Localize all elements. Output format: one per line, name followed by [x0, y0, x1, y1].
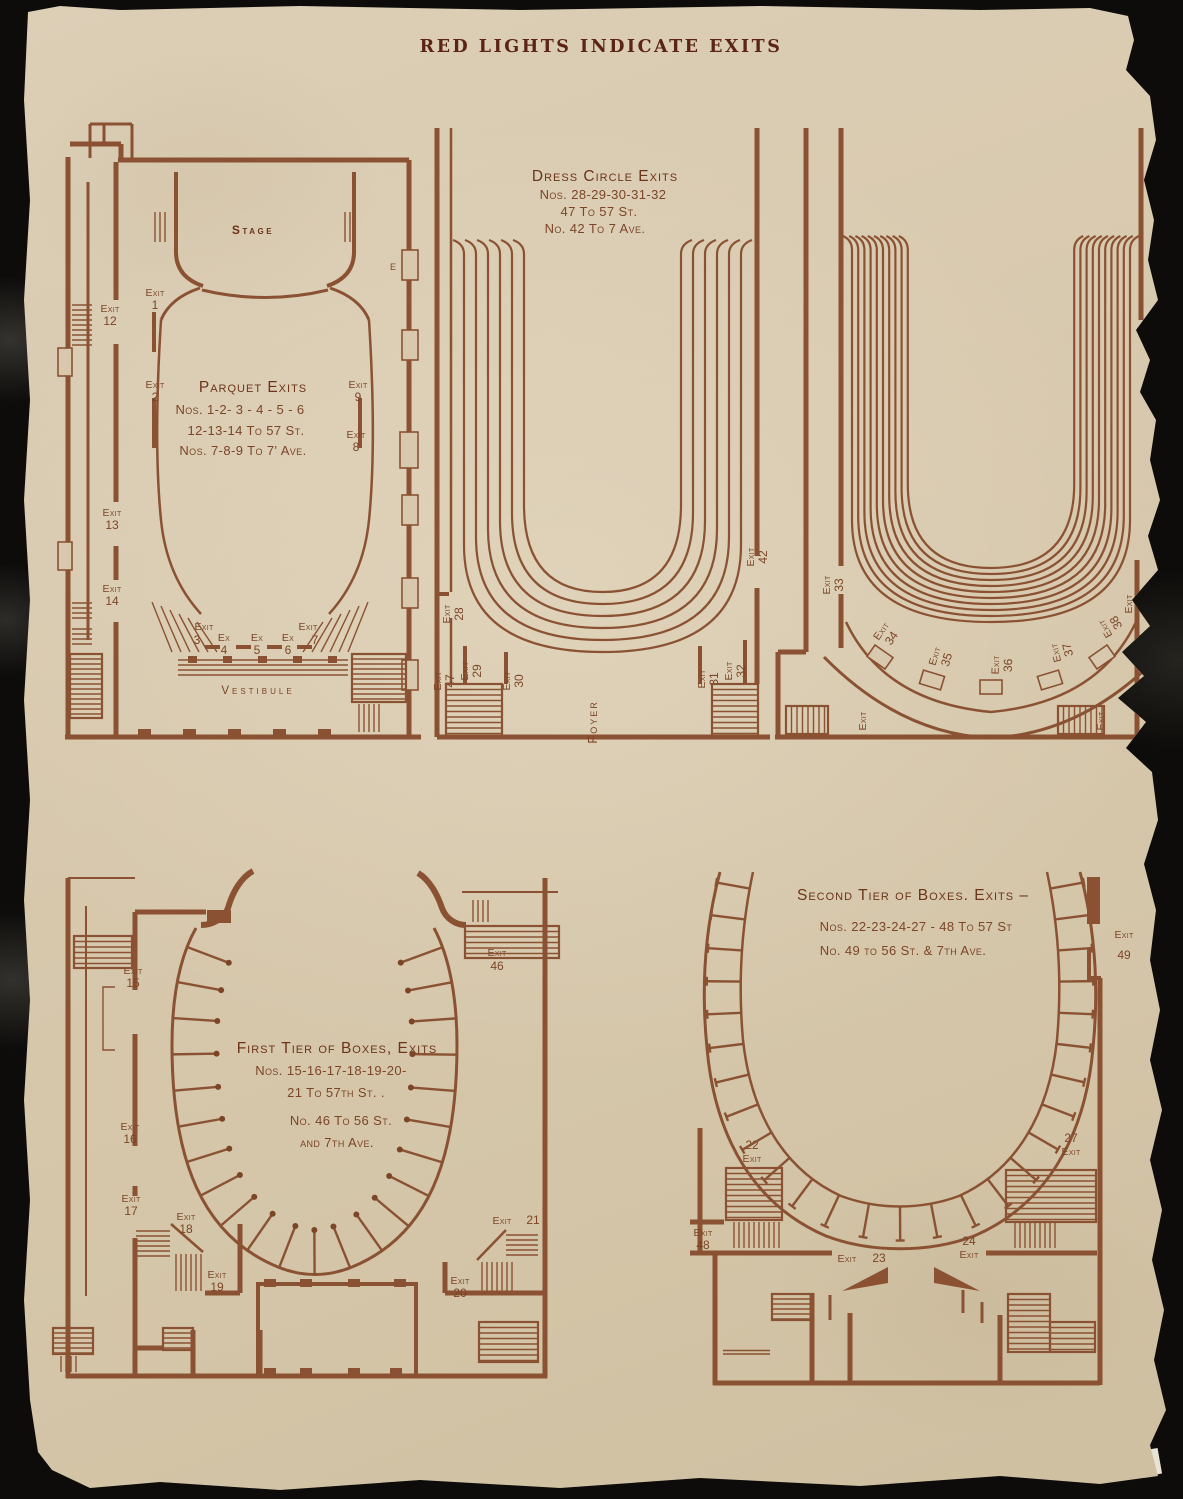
- staircase-hatch: [163, 1328, 193, 1350]
- door-bracket: [103, 987, 115, 1050]
- svg-text:32: 32: [734, 664, 748, 678]
- svg-text:9: 9: [355, 390, 362, 404]
- exit-label: Exit36: [990, 655, 1016, 675]
- staircase-hatch: [1008, 1294, 1050, 1352]
- svg-text:5: 5: [254, 643, 261, 657]
- door-swing-pennant: [934, 1267, 980, 1291]
- plan-note-line: No. 46 To 56 St.: [290, 1113, 392, 1128]
- svg-text:Foyer: Foyer: [585, 700, 600, 743]
- svg-text:16: 16: [123, 1132, 137, 1146]
- balcony-plan: Exit33 Exit34 Exit35 Exit36 Exit37 Exit3…: [775, 128, 1163, 738]
- svg-text:48: 48: [696, 1238, 710, 1252]
- staircase-hatch: [359, 704, 379, 732]
- parquet-plan: Stage E Vestibule Parquet Exits Nos. 1-2…: [58, 124, 421, 739]
- plan-note-line: 12-13-14 To 57 St.: [187, 423, 304, 438]
- svg-text:1: 1: [152, 298, 159, 312]
- dress-circle-plan: Dress Circle Exits Nos. 28-29-30-31-32 4…: [432, 128, 770, 744]
- exit-label: Exit29: [459, 661, 484, 681]
- exit-label: Ex4: [218, 632, 230, 657]
- exit-label: Exit33: [821, 575, 846, 595]
- svg-text:21: 21: [526, 1213, 540, 1227]
- lobby-columns: [264, 1279, 406, 1376]
- svg-text:8: 8: [353, 440, 360, 454]
- staircase-hatch: [506, 1235, 538, 1255]
- exit-plans-figure: RED LIGHTS INDICATE EXITS Stage E Vestib…: [0, 0, 1183, 1499]
- exit-label: Exit46: [487, 947, 507, 973]
- svg-text:6: 6: [285, 643, 292, 657]
- exit-label: Exit17: [121, 1193, 141, 1218]
- svg-text:37: 37: [1059, 641, 1076, 658]
- box-partitions: [172, 947, 457, 1274]
- plan-note-line: 47 To 57 St.: [560, 204, 637, 219]
- exit-label: Exit9: [348, 379, 368, 404]
- exit-label: Exit19: [207, 1269, 227, 1294]
- exit-label: Exit38: [1095, 611, 1126, 640]
- svg-text:30: 30: [512, 674, 526, 688]
- exit-label: Exit31: [696, 669, 721, 689]
- staircase-hatch: [136, 1231, 170, 1256]
- plan-note-line: Nos. 15-16-17-18-19-20-: [255, 1063, 407, 1078]
- vestibule-label: Vestibule: [221, 685, 294, 697]
- staircase-hatch: [1015, 1222, 1055, 1248]
- staircase-hatch: [723, 1351, 770, 1355]
- svg-text:29: 29: [470, 664, 484, 678]
- lobby-rect: [258, 1284, 416, 1376]
- staircase-hatch: [786, 706, 828, 734]
- plan-note-line: Nos. 22-23-24-27 - 48 To 57 St: [820, 919, 1013, 934]
- staircase-hatch: [53, 1328, 93, 1354]
- plan-note-line: Nos. 1-2- 3 - 4 - 5 - 6: [175, 402, 304, 417]
- exit-label: Exit37: [1048, 638, 1077, 663]
- exit-label: Exit2: [145, 379, 165, 404]
- plan-note-line: 21 To 57th St. .: [287, 1085, 385, 1100]
- svg-text:23: 23: [872, 1251, 886, 1265]
- second-tier-plan: Second Tier of Boxes. Exits – Nos. 22-23…: [690, 872, 1134, 1385]
- seating-rows: [843, 236, 1139, 622]
- plan-heading: First Tier of Boxes, Exits: [237, 1040, 438, 1057]
- svg-text:18: 18: [179, 1222, 193, 1236]
- exit-label: Exit: [857, 711, 869, 731]
- svg-text:Exit: Exit: [1114, 929, 1134, 941]
- staircase-hatch: [479, 1322, 538, 1362]
- svg-text:14: 14: [105, 594, 119, 608]
- staircase-hatch: [1058, 706, 1104, 734]
- svg-text:33: 33: [832, 578, 846, 592]
- svg-text:19: 19: [210, 1280, 224, 1294]
- staircase-hatch: [473, 900, 488, 922]
- foyer-label: Foyer: [585, 700, 600, 743]
- svg-text:Exit: Exit: [837, 1253, 857, 1265]
- exit-label: Exit30: [501, 671, 526, 691]
- seating-rows: [453, 240, 752, 652]
- staircase-hatch: [446, 684, 502, 736]
- staircase-hatch: [352, 654, 406, 702]
- svg-text:Exit: Exit: [857, 711, 869, 731]
- exit-label: Exit20: [450, 1275, 470, 1300]
- exit-label: Exit24: [959, 1234, 979, 1261]
- plan-note-line: Nos. 7-8-9 To 7' Ave.: [179, 443, 306, 458]
- staircase-hatch: [482, 1262, 512, 1292]
- plan-heading: Dress Circle Exits: [532, 168, 678, 185]
- staircase-hatch: [712, 684, 758, 736]
- staircase-hatch: [465, 926, 559, 958]
- exit-label: Exit47: [432, 671, 457, 691]
- staircase-hatch: [176, 1254, 201, 1291]
- exit-label: Exit18: [176, 1211, 196, 1236]
- plan-note-line: No. 49 to 56 St. & 7th Ave.: [820, 943, 987, 958]
- staircase-hatch: [70, 654, 102, 718]
- svg-text:Exit: Exit: [1061, 1146, 1081, 1158]
- svg-text:13: 13: [105, 518, 119, 532]
- svg-text:27: 27: [1064, 1131, 1078, 1145]
- exit-label: Exit28: [441, 604, 466, 624]
- exit-label: Exit8: [346, 429, 366, 454]
- door-jambs: [830, 1290, 982, 1323]
- svg-text:35: 35: [938, 651, 955, 668]
- stage-label: Stage: [232, 223, 274, 237]
- exit-label: Exit21: [492, 1213, 540, 1227]
- svg-text:24: 24: [962, 1234, 976, 1248]
- svg-text:36: 36: [1001, 658, 1015, 672]
- box-tier-rail: [172, 928, 457, 1275]
- staircase-hatch: [155, 212, 165, 242]
- plan-heading: Second Tier of Boxes. Exits –: [797, 887, 1029, 904]
- svg-text:4: 4: [221, 643, 228, 657]
- exit-label: Exit13: [102, 507, 122, 532]
- door-swing-pennant: [842, 1267, 888, 1291]
- plan-note-line: No. 42 To 7 Ave.: [545, 221, 646, 236]
- svg-text:20: 20: [453, 1286, 467, 1300]
- program-page: RED LIGHTS INDICATE EXITS Stage E Vestib…: [0, 0, 1183, 1499]
- staircase-hatch: [1006, 1170, 1096, 1222]
- staircase-hatch: [726, 1168, 782, 1220]
- svg-text:Exit: Exit: [492, 1215, 512, 1227]
- svg-text:7: 7: [312, 633, 319, 647]
- svg-text:49: 49: [1117, 948, 1131, 962]
- exit-label: Ex6: [282, 632, 294, 657]
- exit-label: Exit14: [102, 583, 122, 608]
- parquet-seating-outline: [157, 320, 373, 614]
- exit-label: Exit48: [693, 1227, 713, 1252]
- svg-text:42: 42: [756, 550, 770, 564]
- plan-heading: Parquet Exits: [199, 379, 307, 396]
- door-letter-label: E: [390, 262, 396, 272]
- exit-label: Exit12: [100, 303, 120, 328]
- entrance-step: [207, 910, 231, 923]
- staircase-hatch: [74, 936, 132, 968]
- first-tier-plan: First Tier of Boxes, Exits Nos. 15-16-17…: [53, 871, 559, 1378]
- svg-text:28: 28: [452, 607, 466, 621]
- svg-text:Exit: Exit: [742, 1153, 762, 1165]
- exit-label: Exit23: [837, 1251, 886, 1265]
- svg-text:12: 12: [103, 314, 117, 328]
- svg-text:2: 2: [152, 390, 159, 404]
- exit-label: Exit49: [1114, 929, 1134, 962]
- svg-text:Exit: Exit: [298, 621, 318, 633]
- svg-text:17: 17: [124, 1204, 138, 1218]
- entrance-hooks: [201, 871, 466, 925]
- svg-text:Exit: Exit: [959, 1249, 979, 1261]
- exit-label: Exit35: [927, 645, 957, 671]
- plan-note-line: and 7th Ave.: [300, 1135, 374, 1150]
- svg-text:46: 46: [490, 959, 504, 973]
- exit-label: Exit1: [145, 287, 165, 312]
- staircase-hatch: [1050, 1322, 1095, 1352]
- svg-text:39: 39: [1134, 597, 1148, 611]
- exit-label: Exit39: [1123, 594, 1148, 614]
- staircase-hatch: [772, 1294, 812, 1320]
- page-title: RED LIGHTS INDICATE EXITS: [420, 37, 783, 57]
- staircase-hatch: [734, 1222, 779, 1248]
- svg-text:15: 15: [126, 976, 140, 990]
- plan-note-line: Nos. 28-29-30-31-32: [540, 187, 667, 202]
- exit-label: Exit22: [742, 1138, 762, 1165]
- exit-label: Ex5: [251, 632, 263, 657]
- exit-label: Exit27: [1061, 1131, 1081, 1158]
